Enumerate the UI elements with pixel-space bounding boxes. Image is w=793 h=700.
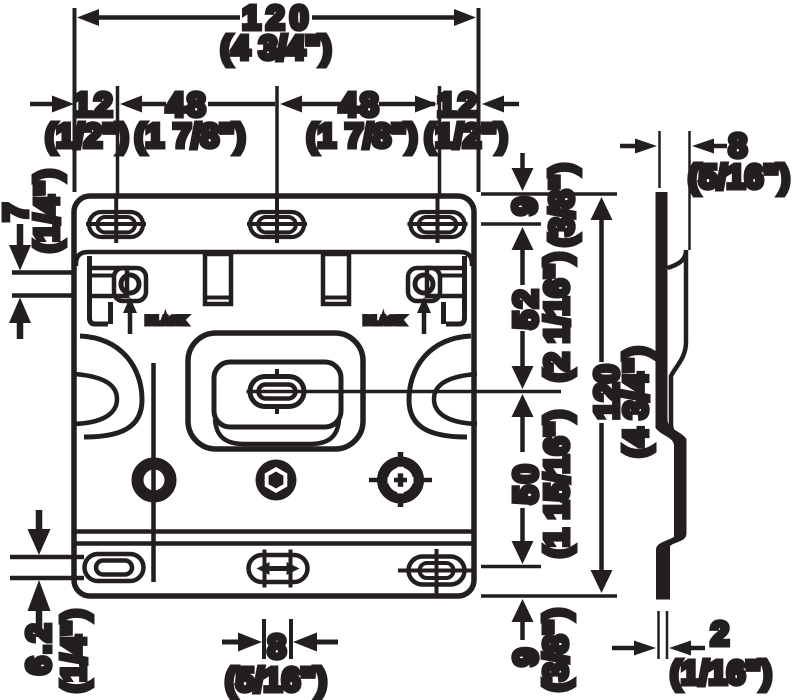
svg-text:(1 15/16"): (1 15/16") [538,410,575,558]
svg-text:(1/4"): (1/4") [28,169,65,253]
svg-text:(4 3/4"): (4 3/4") [617,346,654,457]
svg-text:(3/8"): (3/8") [543,163,580,247]
svg-text:(1/16"): (1/16") [670,654,772,691]
svg-text:2: 2 [711,615,732,652]
svg-text:(1 7/8"): (1 7/8") [134,117,245,154]
svg-text:(1 7/8"): (1 7/8") [306,117,417,154]
svg-text:(5/16"): (5/16") [225,661,327,698]
svg-text:6.2: 6.2 [20,621,57,674]
svg-text:(1/4"): (1/4") [55,609,92,693]
svg-text:(2 1/16"): (2 1/16") [538,252,575,381]
svg-text:(1/2"): (1/2") [45,117,129,154]
svg-text:BLACK: BLACK [364,315,405,327]
svg-text:(5/16"): (5/16") [688,158,790,195]
svg-text:BLACK: BLACK [146,315,187,327]
svg-text:8: 8 [268,628,289,665]
svg-text:9: 9 [506,195,543,216]
svg-text:(4 3/4"): (4 3/4") [220,29,331,66]
svg-text:(1/2"): (1/2") [424,117,508,154]
svg-text:(3/8"): (3/8") [537,608,574,692]
